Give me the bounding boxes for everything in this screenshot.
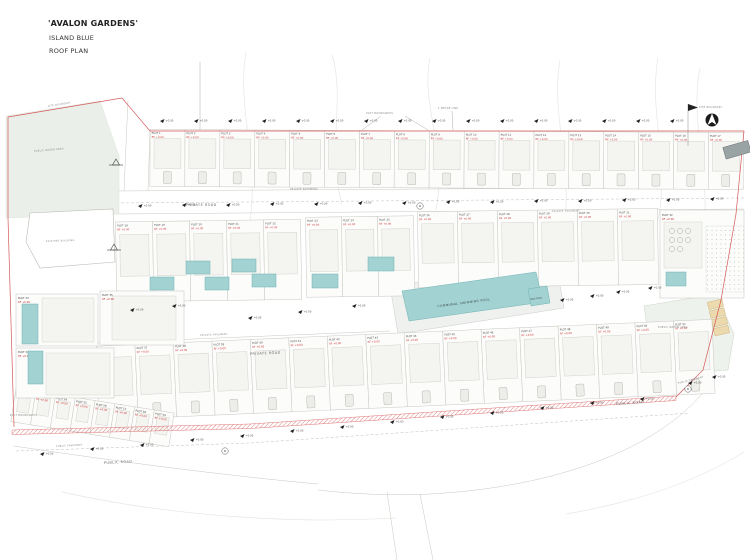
- private-pool: [150, 277, 174, 290]
- roof-level-label: RF +0.00: [396, 136, 408, 140]
- plot-boundaries-callout-2: PLOT BOUNDARIES: [10, 414, 37, 417]
- car-space: [576, 384, 585, 396]
- house-roof: [486, 340, 518, 380]
- roof-level-label: RF +0.00: [214, 346, 227, 351]
- car-space: [614, 382, 623, 394]
- spot-level-value: +0.00: [452, 200, 460, 204]
- spot-level-value: +0.00: [254, 316, 262, 320]
- spot-level-value: +0.00: [396, 420, 404, 424]
- spot-level-value: +0.00: [364, 201, 372, 205]
- spot-level-marker: +0.00: [670, 119, 684, 124]
- house-roof: [154, 139, 181, 169]
- roof-level-label: RF +0.00: [175, 348, 188, 353]
- spot-level-value: +0.00: [628, 198, 636, 202]
- manhole-dot-2: [224, 450, 226, 452]
- north-arrow-icon: [706, 114, 719, 127]
- house-roof: [178, 353, 210, 393]
- spot-level-marker: +0.00: [248, 316, 262, 321]
- scheme-title: ISLAND BLUE: [49, 34, 94, 42]
- plot-label: PLOT 22: [265, 221, 276, 225]
- drawing-title: ROOF PLAN: [49, 47, 88, 55]
- spot-level-value: +0.00: [144, 204, 152, 208]
- spot-level-value: +0.00: [540, 119, 548, 123]
- house-roof: [157, 234, 187, 276]
- spot-level-marker: +0.00: [390, 420, 404, 425]
- car-space: [345, 394, 354, 406]
- plot-label: PLOT 8: [396, 132, 405, 136]
- spot-level-marker: +0.00: [270, 202, 284, 207]
- private-pool: [22, 304, 38, 344]
- manhole-dot: [419, 205, 421, 207]
- roof-level-label: RF +0.00: [187, 135, 199, 139]
- house-roof: [224, 139, 251, 169]
- roof-level-label: RF +0.00: [501, 137, 513, 141]
- car-space: [233, 172, 241, 184]
- car-space: [443, 173, 451, 185]
- spot-level-value: +0.00: [246, 434, 254, 438]
- plot-label: PLOT 4: [256, 131, 265, 135]
- roof-level-label: RF +0.00: [228, 226, 240, 230]
- spot-level-value: +0.00: [438, 119, 446, 123]
- house-roof: [328, 139, 355, 169]
- house-roof: [524, 338, 556, 378]
- car-space: [460, 389, 469, 401]
- roof-level-label: RF +0.00: [560, 331, 573, 336]
- spot-level-value: +0.00: [296, 429, 304, 433]
- roof-level-label: RF +0.00: [137, 349, 150, 354]
- plot-label: PLOT 30: [579, 211, 590, 215]
- spot-level-value: +0.00: [496, 200, 504, 204]
- public-road-right-label: PUBLIC ROAD: [616, 400, 645, 406]
- car-space: [687, 174, 695, 186]
- plot-label: PLOT 25: [379, 218, 390, 222]
- spot-level-marker: +0.00: [710, 197, 724, 202]
- private-pavement-label-c: PRIVATE PAVEMENT: [200, 333, 228, 337]
- plot-label: PLOT 37: [136, 345, 147, 349]
- house-roof: [332, 346, 364, 386]
- house-roof: [538, 141, 565, 171]
- house-roof: [255, 350, 287, 390]
- spot-level-value: +0.00: [358, 304, 366, 308]
- house-roof: [502, 222, 535, 262]
- roof-level-label: RF +0.00: [326, 136, 338, 140]
- spot-level-marker: +0.00: [648, 286, 662, 291]
- plot-boundaries-callout: PLOT BOUNDARIES: [366, 112, 393, 115]
- one-metre-line-callout: 1 METRE LINE: [438, 107, 458, 110]
- roof-level-label: RF +0.00: [329, 341, 342, 346]
- roof-level-label: RF +0.00: [579, 215, 591, 219]
- roof-level-label: RF +0.00: [291, 136, 303, 140]
- spot-level-value: +0.00: [596, 401, 604, 405]
- roof-level-label: RF +0.00: [256, 135, 268, 139]
- spot-level-value: +0.00: [608, 119, 616, 123]
- spot-level-marker: +0.00: [568, 119, 582, 124]
- spot-level-value: +0.00: [672, 198, 680, 202]
- avalon-gardens-roof-plan: PLOT 1RF +0.00PLOT 2RF +0.00PLOT 3RF +0.…: [0, 0, 750, 560]
- house-roof: [112, 296, 176, 340]
- plot-label: PLOT 1: [152, 131, 161, 135]
- house-roof: [363, 140, 390, 170]
- spot-level-value: +0.00: [654, 286, 662, 290]
- spot-level-marker: +0.00: [194, 119, 208, 124]
- car-space: [303, 172, 311, 184]
- spot-level-value: +0.00: [584, 199, 592, 203]
- spot-level-value: +0.00: [646, 397, 654, 401]
- house-roof: [608, 141, 635, 171]
- roof-level-label: RF +0.00: [499, 216, 511, 220]
- house-roof: [139, 355, 171, 395]
- plot-label: PLOT 26: [419, 213, 430, 217]
- spot-level-value: +0.00: [596, 294, 604, 298]
- spot-level-value: +0.00: [446, 415, 454, 419]
- house-roof: [622, 221, 655, 261]
- spot-level-value: +0.00: [276, 202, 284, 206]
- private-pavement-label-a: PRIVATE PAVEMENT: [290, 188, 318, 191]
- spot-level-value: +0.00: [540, 199, 548, 203]
- plot-label: PLOT 42: [329, 337, 340, 341]
- house-roof: [294, 139, 321, 169]
- plot-label: PLOT 39: [213, 342, 224, 346]
- car-space: [307, 396, 316, 408]
- house-roof: [216, 351, 248, 391]
- roof-level-label: RF +0.00: [640, 137, 652, 141]
- plot-label: PLOT 19: [154, 223, 165, 227]
- spot-level-marker: +0.00: [228, 119, 242, 124]
- spot-level-value: +0.00: [136, 308, 144, 312]
- car-space: [537, 386, 546, 398]
- roof-level-label: RF +0.00: [18, 300, 30, 304]
- spot-level-value: +0.00: [200, 119, 208, 123]
- amenity-roof-label: RF +0.00: [662, 217, 674, 221]
- roof-level-label: RF +0.00: [343, 222, 355, 226]
- car-space: [268, 397, 277, 409]
- private-road-upper-label: PRIVATE ROAD: [186, 203, 217, 207]
- private-pool: [28, 351, 43, 384]
- plot-label: PLOT 13: [570, 133, 581, 137]
- car-space: [422, 391, 431, 403]
- spot-level-value: +0.00: [166, 119, 174, 123]
- roof-level-label: RF +0.00: [102, 297, 114, 301]
- spot-level-marker: +0.00: [616, 290, 630, 295]
- house-roof: [503, 140, 530, 170]
- house-roof: [293, 348, 325, 388]
- spot-level-marker: +0.00: [140, 443, 154, 448]
- house-roof: [370, 345, 402, 385]
- plot-label: PLOT 15: [640, 133, 651, 137]
- spot-level-value: +0.00: [46, 452, 54, 456]
- spot-level-value: +0.00: [546, 406, 554, 410]
- plot-label: PLOT 47: [521, 329, 532, 333]
- roof-level-label: RF +0.00: [265, 225, 277, 229]
- private-pool: [252, 274, 276, 287]
- planted-area: [706, 226, 744, 292]
- spot-level-value: +0.00: [232, 203, 240, 207]
- spot-level-marker: +0.00: [262, 119, 276, 124]
- roof-level-label: RF +0.00: [291, 343, 304, 348]
- roof-level-label: RF +0.00: [406, 338, 419, 343]
- car-space: [652, 174, 660, 186]
- private-pool: [666, 272, 686, 286]
- amenity-plot-label: PLOT 32: [662, 213, 673, 217]
- car-space: [268, 172, 276, 184]
- plot-label: PLOT 24: [343, 218, 354, 222]
- spot-level-marker: +0.00: [330, 119, 344, 124]
- plot-label: PLOT 10: [466, 133, 477, 137]
- spot-level-value: +0.00: [196, 438, 204, 442]
- public-green-area-left: [6, 101, 119, 218]
- roof-level-label: RF +0.00: [419, 217, 431, 221]
- car-space: [198, 172, 206, 184]
- spot-level-value: +0.00: [506, 119, 514, 123]
- spot-level-value: +0.00: [694, 381, 702, 385]
- spot-level-marker: +0.00: [352, 304, 366, 309]
- plot-label: PLOT 49: [598, 325, 609, 329]
- plot-label: PLOT 46: [483, 330, 494, 334]
- roof-level-label: RF +0.00: [536, 137, 548, 141]
- roof-level-label: RF +0.00: [154, 227, 166, 231]
- house-roof: [542, 222, 575, 262]
- house-roof: [677, 141, 704, 171]
- car-space: [722, 174, 730, 186]
- private-pavement-label-b: PRIVATE PAVEMENT: [552, 210, 580, 213]
- roof-level-label: RF +0.00: [379, 222, 391, 226]
- roof-level-label: RF +0.00: [431, 136, 443, 140]
- spot-level-value: +0.00: [676, 119, 684, 123]
- car-space: [499, 387, 508, 399]
- plot-label: PLOT 2: [187, 131, 196, 135]
- spot-level-marker: +0.00: [296, 119, 310, 124]
- plot-label: PLOT 16: [675, 134, 686, 138]
- plot-label: PLOT 3: [221, 131, 230, 135]
- spot-level-marker: +0.00: [40, 452, 54, 457]
- roof-level-label: RF +0.00: [252, 344, 265, 349]
- car-space: [384, 392, 393, 404]
- public-road-left-label: PUBLIC ROAD: [104, 460, 133, 465]
- roof-level-label: RF +0.00: [483, 334, 496, 339]
- spot-level-value: +0.00: [404, 119, 412, 123]
- site-boundary-callout: SITE BOUNDARY: [699, 106, 723, 109]
- house-roof: [259, 139, 286, 169]
- spot-level-marker: +0.00: [534, 119, 548, 124]
- car-space: [653, 381, 662, 393]
- spot-level-value: +0.00: [336, 119, 344, 123]
- roof-level-label: RF +0.00: [710, 138, 722, 142]
- house-roof: [46, 353, 110, 395]
- roof-level-label: RF +0.00: [521, 333, 534, 338]
- spot-level-marker: +0.00: [636, 119, 650, 124]
- spot-level-marker: +0.00: [590, 401, 604, 406]
- house-roof: [582, 221, 615, 261]
- plot-label: PLOT 12: [536, 133, 547, 137]
- spot-level-value: +0.00: [716, 197, 724, 201]
- project-title: 'AVALON GARDENS': [48, 19, 138, 28]
- house-roof: [42, 298, 94, 342]
- spot-level-marker: +0.00: [666, 198, 680, 203]
- house-roof: [678, 331, 710, 371]
- plot-label: PLOT 27: [459, 213, 470, 217]
- spot-level-marker: +0.00: [90, 447, 104, 452]
- house-roof: [409, 343, 441, 383]
- spot-level-marker: +0.00: [466, 119, 480, 124]
- house-roof: [573, 141, 600, 171]
- plot-label: PLOT 23: [307, 219, 318, 223]
- roof-level-label: RF +0.00: [152, 135, 164, 139]
- spot-level-marker: +0.00: [358, 201, 372, 206]
- public-pavement-left-label: PUBLIC PAVEMENT: [56, 444, 83, 448]
- plot-label: PLOT 50: [637, 324, 648, 328]
- roof-level-label: RF +0.00: [307, 223, 319, 227]
- amenity-roof: [664, 222, 702, 268]
- roof-level-label: RF +0.00: [367, 339, 380, 344]
- spot-level-value: +0.00: [642, 119, 650, 123]
- spot-level-marker: +0.00: [190, 438, 204, 443]
- plot-label: PLOT 48: [560, 327, 571, 331]
- spot-level-value: +0.00: [566, 298, 574, 302]
- spot-level-marker: +0.00: [602, 119, 616, 124]
- spot-level-marker: +0.00: [314, 202, 328, 207]
- spot-level-value: +0.00: [96, 447, 104, 451]
- roof-level-label: RF +0.00: [598, 329, 611, 334]
- roof-level-label: RF +0.00: [459, 216, 471, 220]
- spot-level-value: +0.00: [718, 375, 726, 379]
- house-roof: [447, 341, 479, 381]
- plot-label: PLOT 11: [501, 133, 512, 137]
- plot-label: PLOT 29: [539, 211, 550, 215]
- villa-plot: PLOT 35RF +0.00: [100, 291, 184, 345]
- roof-level-label: RF +0.00: [117, 227, 129, 231]
- house-roof: [639, 333, 671, 373]
- plot-label: PLOT 43: [367, 335, 378, 339]
- plot-label: PLOT 17: [710, 134, 721, 138]
- plot-label: PLOT 20: [191, 222, 202, 226]
- spot-level-marker: +0.00: [590, 294, 604, 299]
- car-space: [230, 399, 239, 411]
- house-roof: [310, 230, 339, 272]
- spot-level-marker: +0.00: [398, 119, 412, 124]
- spot-level-value: +0.00: [408, 201, 416, 205]
- roof-level-label: RF +0.00: [539, 215, 551, 219]
- private-pool: [205, 277, 229, 290]
- spot-level-marker: +0.00: [432, 119, 446, 124]
- spot-level-marker: +0.00: [298, 310, 312, 315]
- green-area-right-label: PUBLIC GREEN AREA: [658, 326, 688, 329]
- car-space: [617, 174, 625, 186]
- spot-level-value: +0.00: [304, 310, 312, 314]
- spot-level-marker: +0.00: [138, 204, 152, 209]
- house-roof: [268, 232, 298, 274]
- roof-level-label: RF +0.00: [570, 137, 582, 141]
- plot-label: PLOT 44: [406, 334, 417, 338]
- plot-label: PLOT 6: [326, 132, 335, 136]
- spot-level-value: +0.00: [268, 119, 276, 123]
- spot-level-value: +0.00: [178, 304, 186, 308]
- house-roof: [462, 223, 495, 263]
- spot-level-value: +0.00: [574, 119, 582, 123]
- house-roof: [422, 223, 455, 263]
- spot-level-value: +0.00: [472, 119, 480, 123]
- private-pool: [232, 259, 256, 272]
- spot-level-value: +0.00: [320, 202, 328, 206]
- roof-level-label: RF +0.00: [619, 214, 631, 218]
- spot-level-marker: +0.00: [226, 203, 240, 208]
- car-space: [512, 173, 520, 185]
- spot-level-value: +0.00: [346, 425, 354, 429]
- roof-level-label: RF +0.00: [637, 328, 650, 333]
- house-roof: [189, 139, 216, 169]
- roof-level-label: RF +0.00: [466, 137, 478, 141]
- car-space: [547, 174, 555, 186]
- private-pool: [186, 261, 210, 274]
- spot-level-value: +0.00: [622, 290, 630, 294]
- spot-level-marker: +0.00: [240, 434, 254, 439]
- plot-label: PLOT 33: [18, 296, 29, 300]
- plot-label: PLOT 41: [290, 339, 301, 343]
- spot-level-marker: +0.00: [500, 119, 514, 124]
- manhole-dot-3: [687, 388, 689, 390]
- house-roof: [643, 141, 670, 171]
- plot-label: PLOT 28: [499, 212, 510, 216]
- spot-level-marker: +0.00: [622, 198, 636, 203]
- car-space: [373, 173, 381, 185]
- plot-label: PLOT 9: [431, 132, 440, 136]
- plot-label: PLOT 34: [18, 350, 29, 354]
- plot-label: PLOT 14: [605, 133, 616, 137]
- plot-label: PLOT 5: [291, 132, 300, 136]
- plot-label: PLOT 21: [228, 222, 239, 226]
- roof-level-label: RF +0.00: [444, 336, 457, 341]
- spot-level-marker: +0.00: [340, 425, 354, 430]
- roof-level-label: RF +0.00: [221, 135, 233, 139]
- roof-level-label: RF +0.00: [191, 226, 203, 230]
- plot-label: PLOT 7: [361, 132, 370, 136]
- spot-level-value: +0.00: [146, 443, 154, 447]
- spot-level-marker: +0.00: [290, 429, 304, 434]
- car-space: [191, 401, 200, 413]
- plot-label: PLOT 40: [252, 340, 263, 344]
- plot-label: PLOT 31: [619, 210, 630, 214]
- car-space: [163, 171, 171, 183]
- spot-level-marker: +0.00: [578, 199, 592, 204]
- car-space: [338, 172, 346, 184]
- car-space: [582, 174, 590, 186]
- plot-label: PLOT 35: [102, 293, 113, 297]
- plot-row-mid_right: PLOT 26RF +0.00PLOT 27RF +0.00PLOT 28RF …: [417, 208, 658, 287]
- spot-level-value: +0.00: [234, 119, 242, 123]
- house-roof: [563, 336, 595, 376]
- spot-level-value: +0.00: [496, 411, 504, 415]
- private-pool: [368, 257, 394, 271]
- car-space: [408, 173, 416, 185]
- spot-level-marker: +0.00: [364, 119, 378, 124]
- spot-level-marker: +0.00: [402, 201, 416, 206]
- house-roof: [601, 335, 633, 375]
- house-roof: [468, 140, 495, 170]
- roof-level-label: RF +0.00: [361, 136, 373, 140]
- plot-label: PLOT 45: [444, 332, 455, 336]
- roof-level-label: RF +0.00: [675, 138, 687, 142]
- house-roof: [120, 234, 150, 276]
- spot-level-marker: +0.00: [534, 199, 548, 204]
- house-roof: [398, 140, 425, 170]
- plot-label: PLOT 18: [117, 223, 128, 227]
- car-space: [477, 173, 485, 185]
- house-roof: [433, 140, 460, 170]
- spot-level-value: +0.00: [370, 119, 378, 123]
- spot-level-marker: +0.00: [160, 119, 174, 124]
- private-pool: [312, 274, 338, 288]
- roof-level-label: RF +0.00: [605, 137, 617, 141]
- spot-level-value: +0.00: [302, 119, 310, 123]
